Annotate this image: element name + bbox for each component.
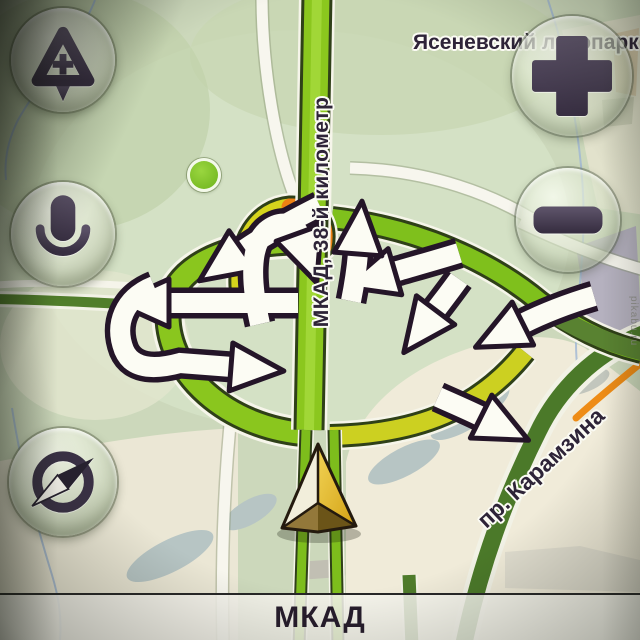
current-road-bar[interactable]: МКАД bbox=[0, 593, 640, 640]
zoom-in-button[interactable] bbox=[512, 16, 632, 136]
current-road-name: МКАД bbox=[274, 601, 365, 635]
zoom-out-button[interactable] bbox=[516, 168, 620, 272]
voice-command-button[interactable] bbox=[11, 182, 115, 286]
minus-icon bbox=[520, 172, 616, 268]
road-label-mkad: МКАД, 38-й километр bbox=[310, 97, 334, 328]
watermark: pikabu.ru bbox=[628, 296, 639, 346]
add-road-event-button[interactable] bbox=[11, 8, 115, 112]
poi-dot bbox=[187, 158, 221, 192]
microphone-icon bbox=[19, 188, 107, 280]
compass-button[interactable] bbox=[9, 428, 117, 536]
road-event-add-icon bbox=[20, 14, 106, 106]
navigator-screen: Ясеневский лесопарк МКАД, 38-й километр … bbox=[0, 0, 640, 640]
compass-icon bbox=[15, 434, 111, 530]
plus-icon bbox=[522, 26, 622, 126]
